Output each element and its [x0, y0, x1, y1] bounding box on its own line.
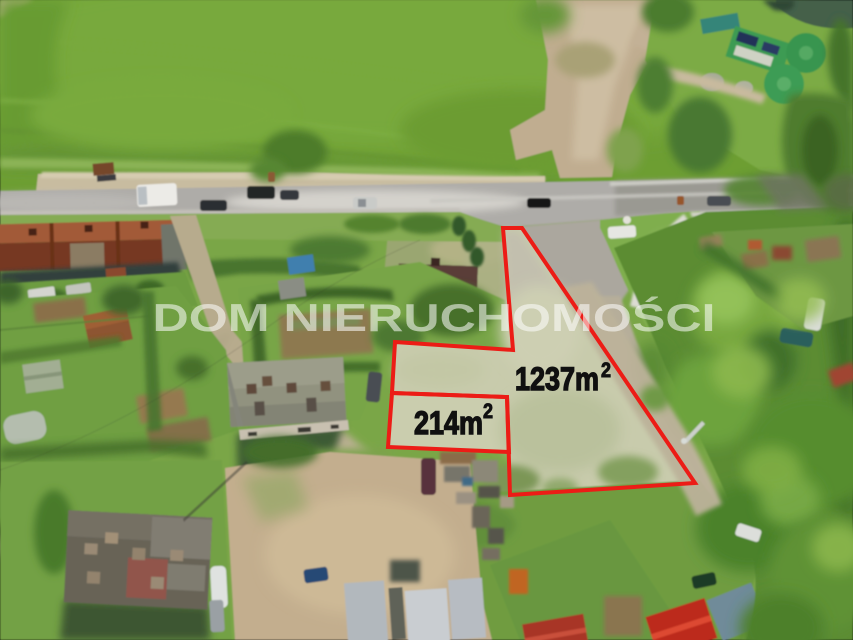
svg-text:2: 2 — [483, 400, 493, 423]
svg-text:1237m: 1237m — [515, 361, 599, 397]
svg-text:214m: 214m — [414, 405, 483, 441]
svg-text:DOM NIERUCHOMOŚCI: DOM NIERUCHOMOŚCI — [153, 296, 716, 340]
svg-text:2: 2 — [601, 359, 611, 382]
